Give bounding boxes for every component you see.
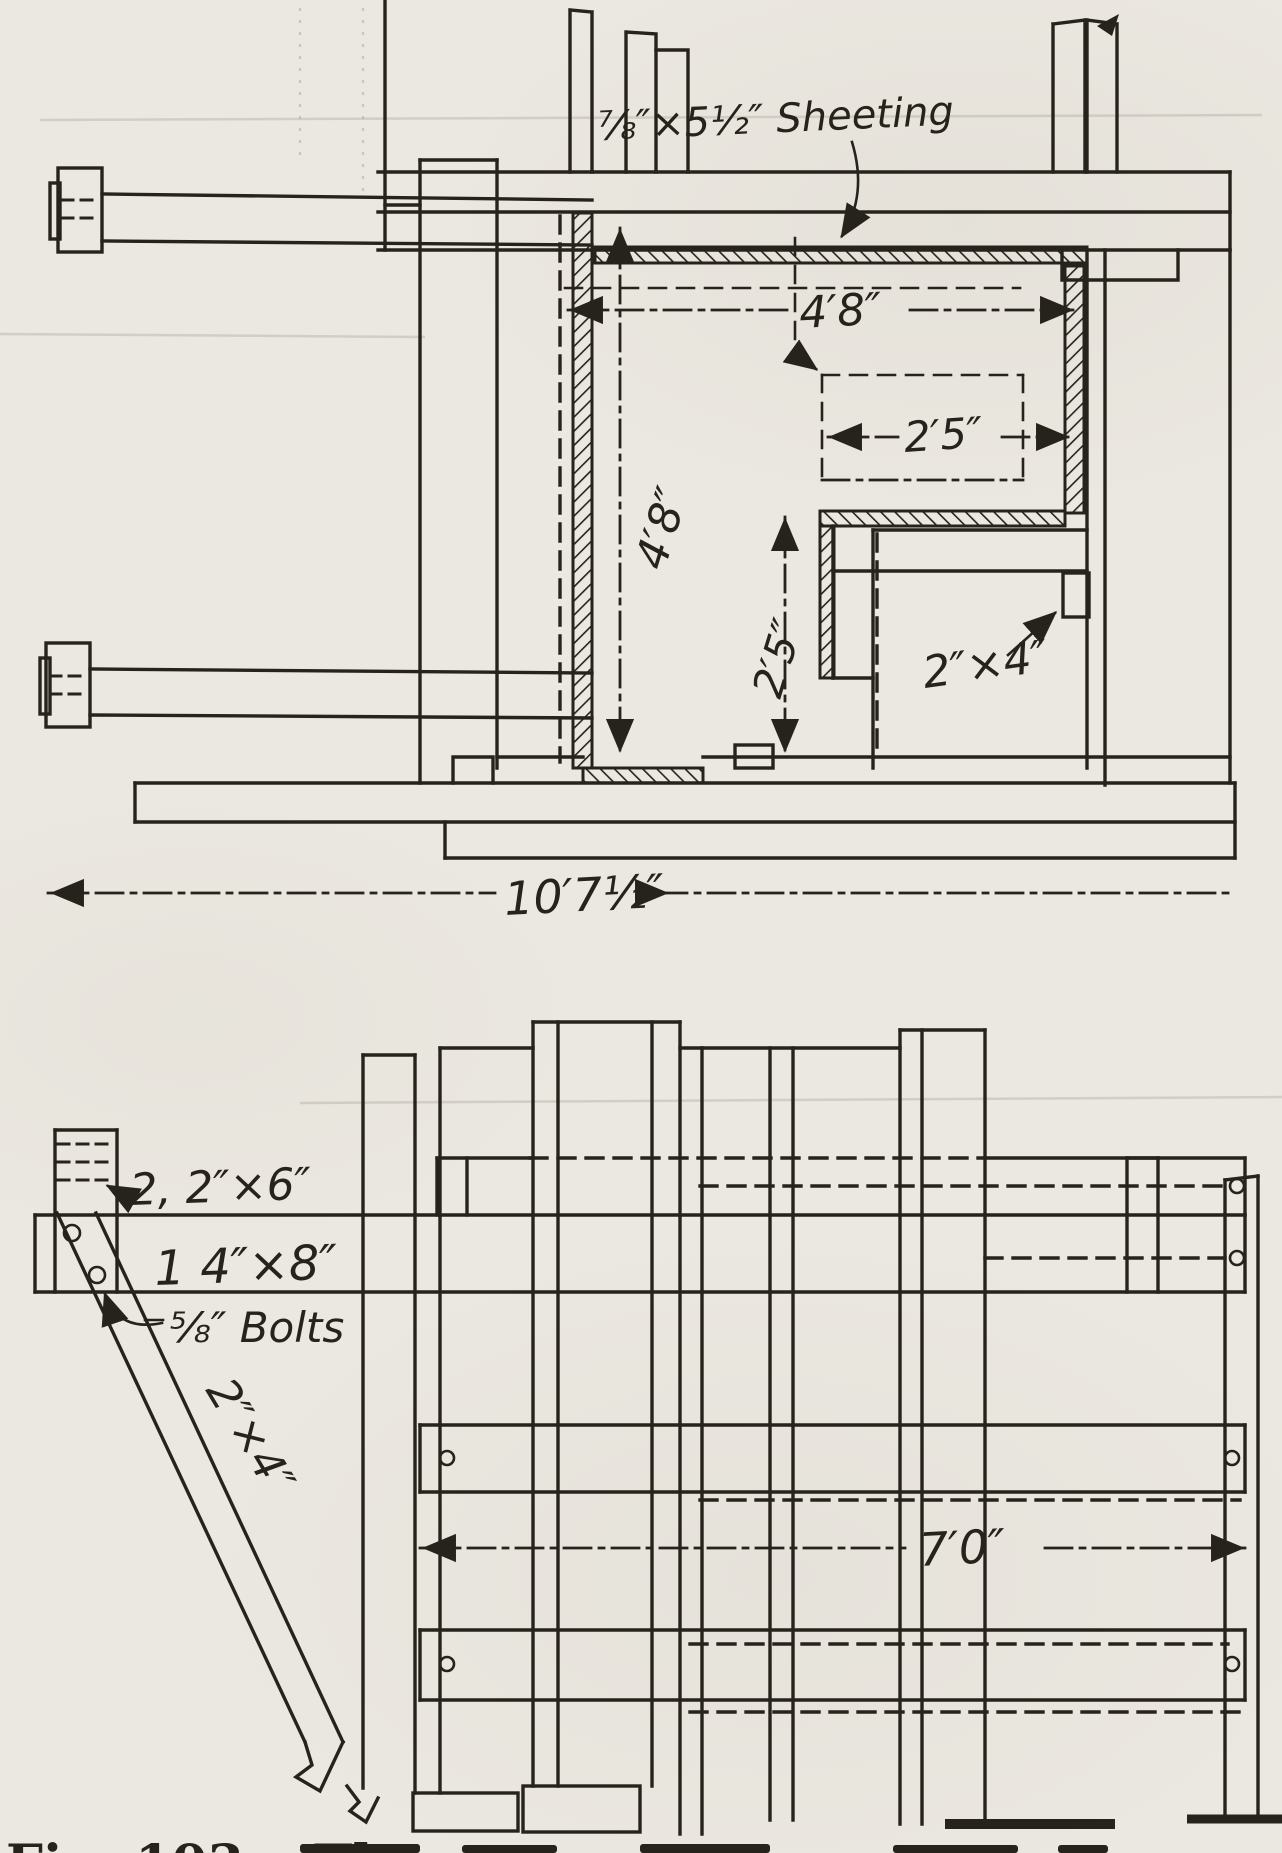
right-wall (1087, 250, 1105, 785)
elevation-view: 2, 2″×6″ 1 4″×8″ ⅝″ Bolts 2″×4″ 7′0″ (35, 1022, 1282, 1834)
waler-single-label: 1 4″×8″ (153, 1235, 338, 1297)
bolt-hole (89, 1267, 105, 1283)
caption-cutoff-words (462, 1845, 557, 1853)
sheeting-label: ⅞″×5½″ Sheeting (596, 88, 954, 150)
engineering-drawing: ⅞″×5½″ Sheeting 4′8″ 2′5″ 4′8″ 2′5″ 2″×4… (0, 0, 1282, 1853)
bolt-head (440, 1657, 454, 1671)
stud-2x4-label: 2″×4″ (919, 631, 1051, 699)
right-post (1225, 1176, 1258, 1818)
bolts-label: ⅝″ Bolts (170, 1303, 344, 1352)
caption-cutoff-words (300, 1844, 420, 1853)
plan-view: ⅞″×5½″ Sheeting 4′8″ 2′5″ 4′8″ 2′5″ 2″×4… (40, 0, 1235, 926)
dim-inner-height-label: 4′8″ (626, 481, 699, 575)
break-line (347, 1786, 378, 1822)
tie-bolt-top (50, 168, 592, 252)
elevation-width-label: 7′0″ (918, 1519, 1007, 1577)
dim-inner-width-label: 4′8″ (798, 284, 884, 339)
caption-strip: Fig. 103.—Th (6, 1834, 1108, 1853)
waler-bottom (420, 1630, 1245, 1712)
bolt-head (1230, 1179, 1244, 1193)
diagonal-brace (57, 1213, 343, 1791)
tie-bolt-bottom (40, 643, 592, 727)
bolt-head (1225, 1451, 1239, 1465)
bolt-head (1230, 1251, 1244, 1265)
caption-cutoff-words (640, 1844, 770, 1853)
dim-overall-label: 10′7½″ (503, 864, 666, 926)
dim-recess-width-label: 2′5″ (902, 408, 984, 462)
brace-label: 2″×4″ (196, 1369, 305, 1504)
caption-cutoff-words (1058, 1845, 1108, 1853)
bolt-head (1225, 1657, 1239, 1671)
dim-recess-height-label: 2′5″ (743, 613, 813, 703)
waler-pair-label: 2, 2″×6″ (129, 1159, 313, 1216)
stud-2x4-block (1063, 573, 1089, 617)
bolt-head (440, 1451, 454, 1465)
top-studs (570, 10, 1119, 172)
left-post (55, 1130, 117, 1292)
waler-middle (420, 1425, 1245, 1500)
caption-cutoff-words (893, 1845, 1018, 1853)
scanned-drawing-page: ⅞″×5½″ Sheeting 4′8″ 2′5″ 4′8″ 2′5″ 2″×4… (0, 0, 1282, 1853)
break-line (296, 1742, 343, 1791)
mid-post (1127, 1158, 1158, 1292)
sheeting-leader (842, 142, 858, 236)
